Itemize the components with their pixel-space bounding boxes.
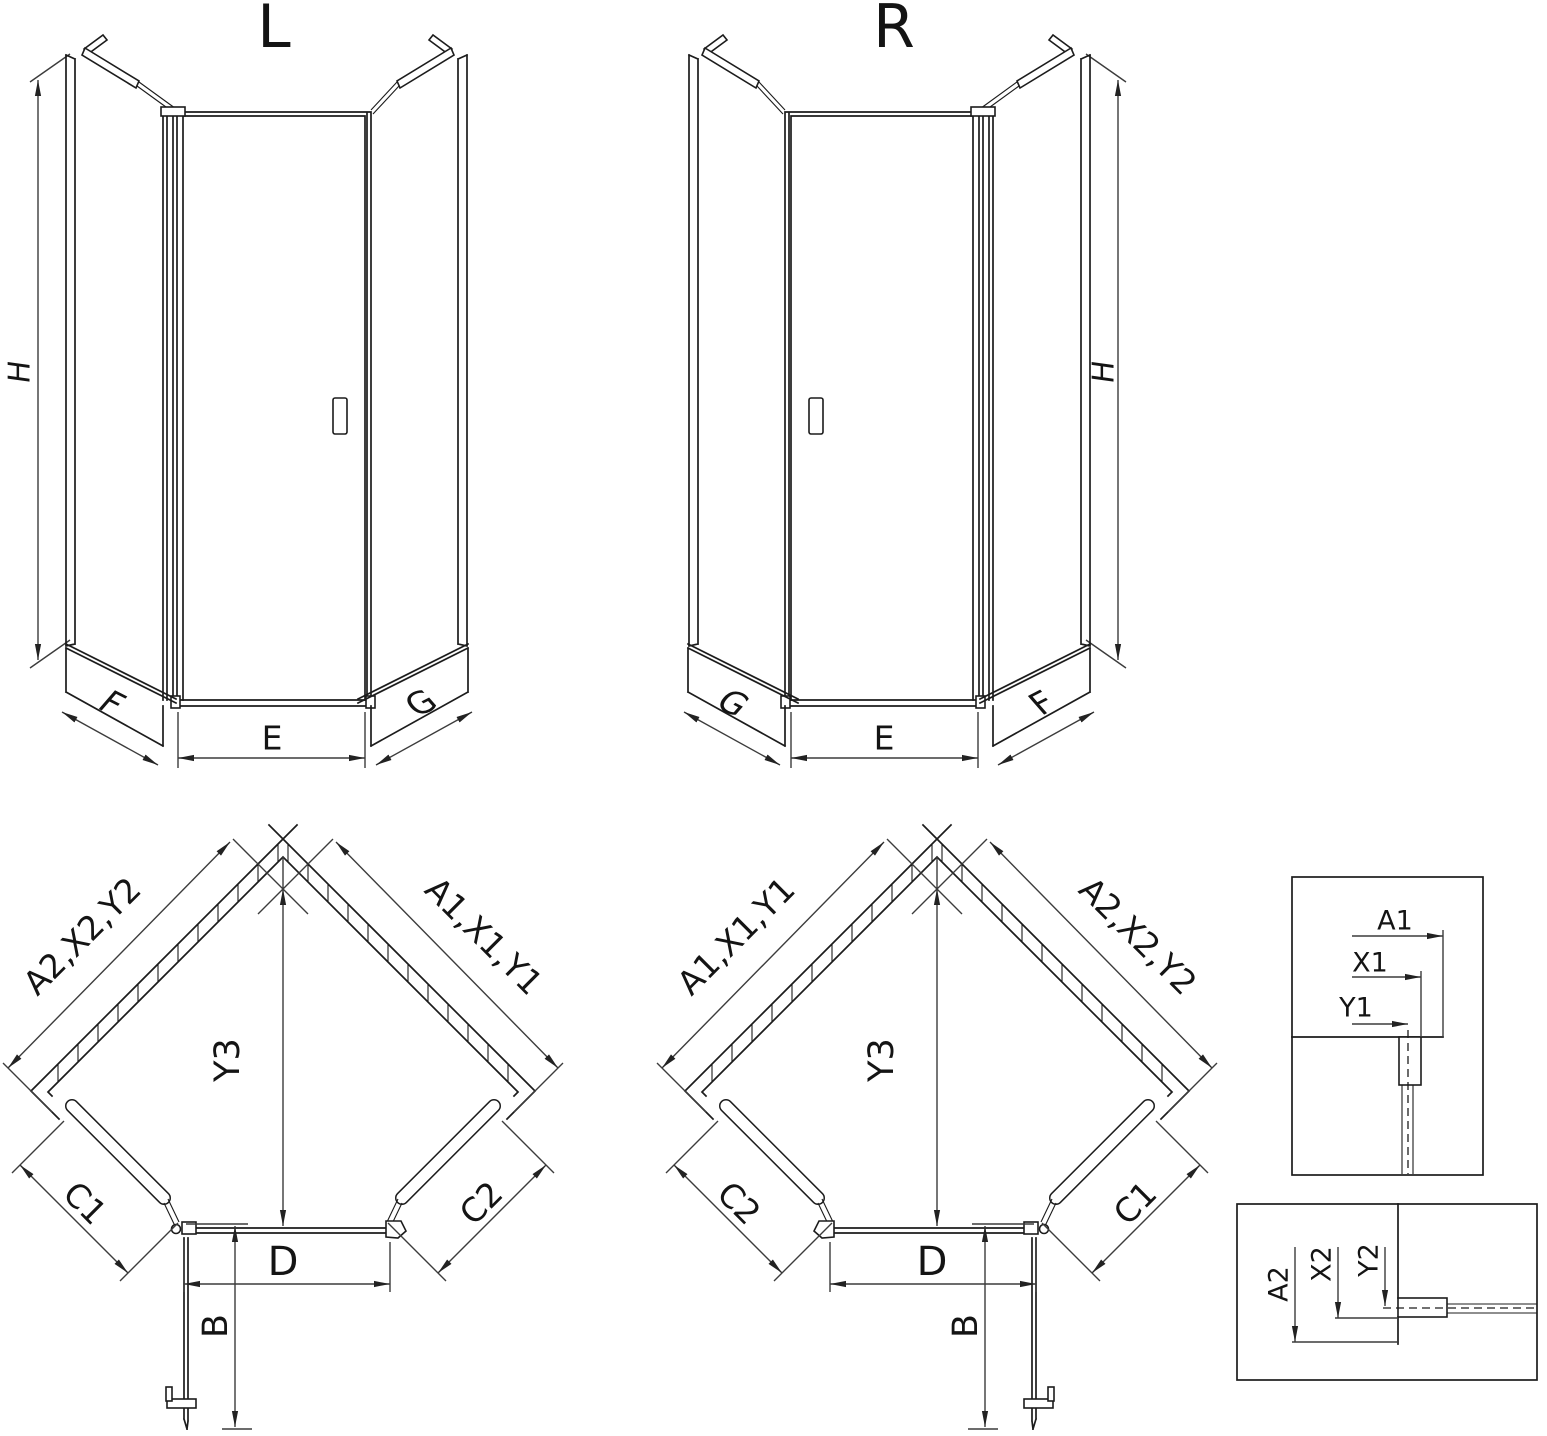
detail-bottom-x-label: X2 xyxy=(1307,1246,1338,1282)
plan-right-panel-right-label: C1 xyxy=(1106,1174,1165,1233)
detail-top-labels: A1 X1 Y1 xyxy=(1338,906,1413,1024)
door-sill xyxy=(174,700,371,706)
front-right-height-label: H xyxy=(1087,358,1122,385)
detail-top-refs xyxy=(1421,930,1443,1037)
front-view-linework xyxy=(30,35,472,768)
plan-right-wall-right-label: A2,X2,Y2 xyxy=(1071,869,1204,1002)
front-view-linework-mirrored xyxy=(684,35,1126,768)
front-right-title: R xyxy=(873,0,915,62)
front-right-tray-left-label: G xyxy=(709,682,758,723)
plan-left-wall-right-label: A1,X1,Y1 xyxy=(417,869,550,1002)
front-left-labels: L H F E G xyxy=(3,0,446,758)
plan-right-door-label: D xyxy=(917,1239,948,1285)
front-left-tray-left-label: F xyxy=(91,684,134,722)
plan-left-wall-left-label: A2,X2,Y2 xyxy=(15,869,148,1002)
plan-left-depth-label: Y3 xyxy=(208,1038,248,1083)
detail-top-profile xyxy=(1399,1037,1421,1085)
plan-left-swing-label: B xyxy=(196,1314,236,1338)
detail-top-a-label: A1 xyxy=(1377,906,1413,937)
front-right-tray-right-label: F xyxy=(1021,684,1064,722)
front-right-labels: R H G E F xyxy=(709,0,1122,758)
detail-bottom-labels: A2 X2 Y2 xyxy=(1264,1243,1385,1302)
technical-drawing-sheet: L H F E G R H G E F A2,X2,Y2 A1,X1,Y1 Y3… xyxy=(0,0,1547,1436)
plan-left-panel-left-label: C1 xyxy=(56,1174,115,1233)
plan-left-door-label: D xyxy=(268,1239,299,1285)
side-panels xyxy=(66,55,467,646)
plan-right-wall-left-label: A1,X1,Y1 xyxy=(669,869,802,1002)
front-left-tray-right-label: G xyxy=(397,682,446,723)
plan-left-panel-right-label: C2 xyxy=(452,1174,511,1233)
right-support-bar xyxy=(371,82,399,114)
plan-right-swing-label: B xyxy=(946,1314,986,1338)
detail-bottom-refs xyxy=(1292,1318,1398,1342)
drawing-canvas: L H F E G R H G E F A2,X2,Y2 A1,X1,Y1 Y3… xyxy=(0,0,1547,1436)
left-bracket-bar xyxy=(82,48,139,88)
tray-left-dim-line xyxy=(62,712,158,765)
hinge-top-cap xyxy=(161,107,185,116)
front-right-door-label: E xyxy=(874,719,895,758)
door-closed-lines xyxy=(196,1228,386,1233)
plan-right-depth-label: Y3 xyxy=(862,1038,902,1083)
plan-right-panel-left-label: C2 xyxy=(710,1174,769,1233)
front-left-height-label: H xyxy=(3,358,38,385)
detail-top-y-label: Y1 xyxy=(1338,993,1373,1024)
door-open-handle-stub xyxy=(166,1387,172,1401)
door-handle xyxy=(333,398,347,434)
detail-bottom-a-label: A2 xyxy=(1264,1266,1295,1302)
front-left-title: L xyxy=(257,0,291,62)
height-dim-extensions xyxy=(30,54,70,668)
detail-bottom-y-label: Y2 xyxy=(1354,1243,1385,1278)
detail-top-x-label: X1 xyxy=(1352,948,1388,979)
right-bracket-bar xyxy=(397,48,454,88)
front-left-door-label: E xyxy=(262,719,283,758)
